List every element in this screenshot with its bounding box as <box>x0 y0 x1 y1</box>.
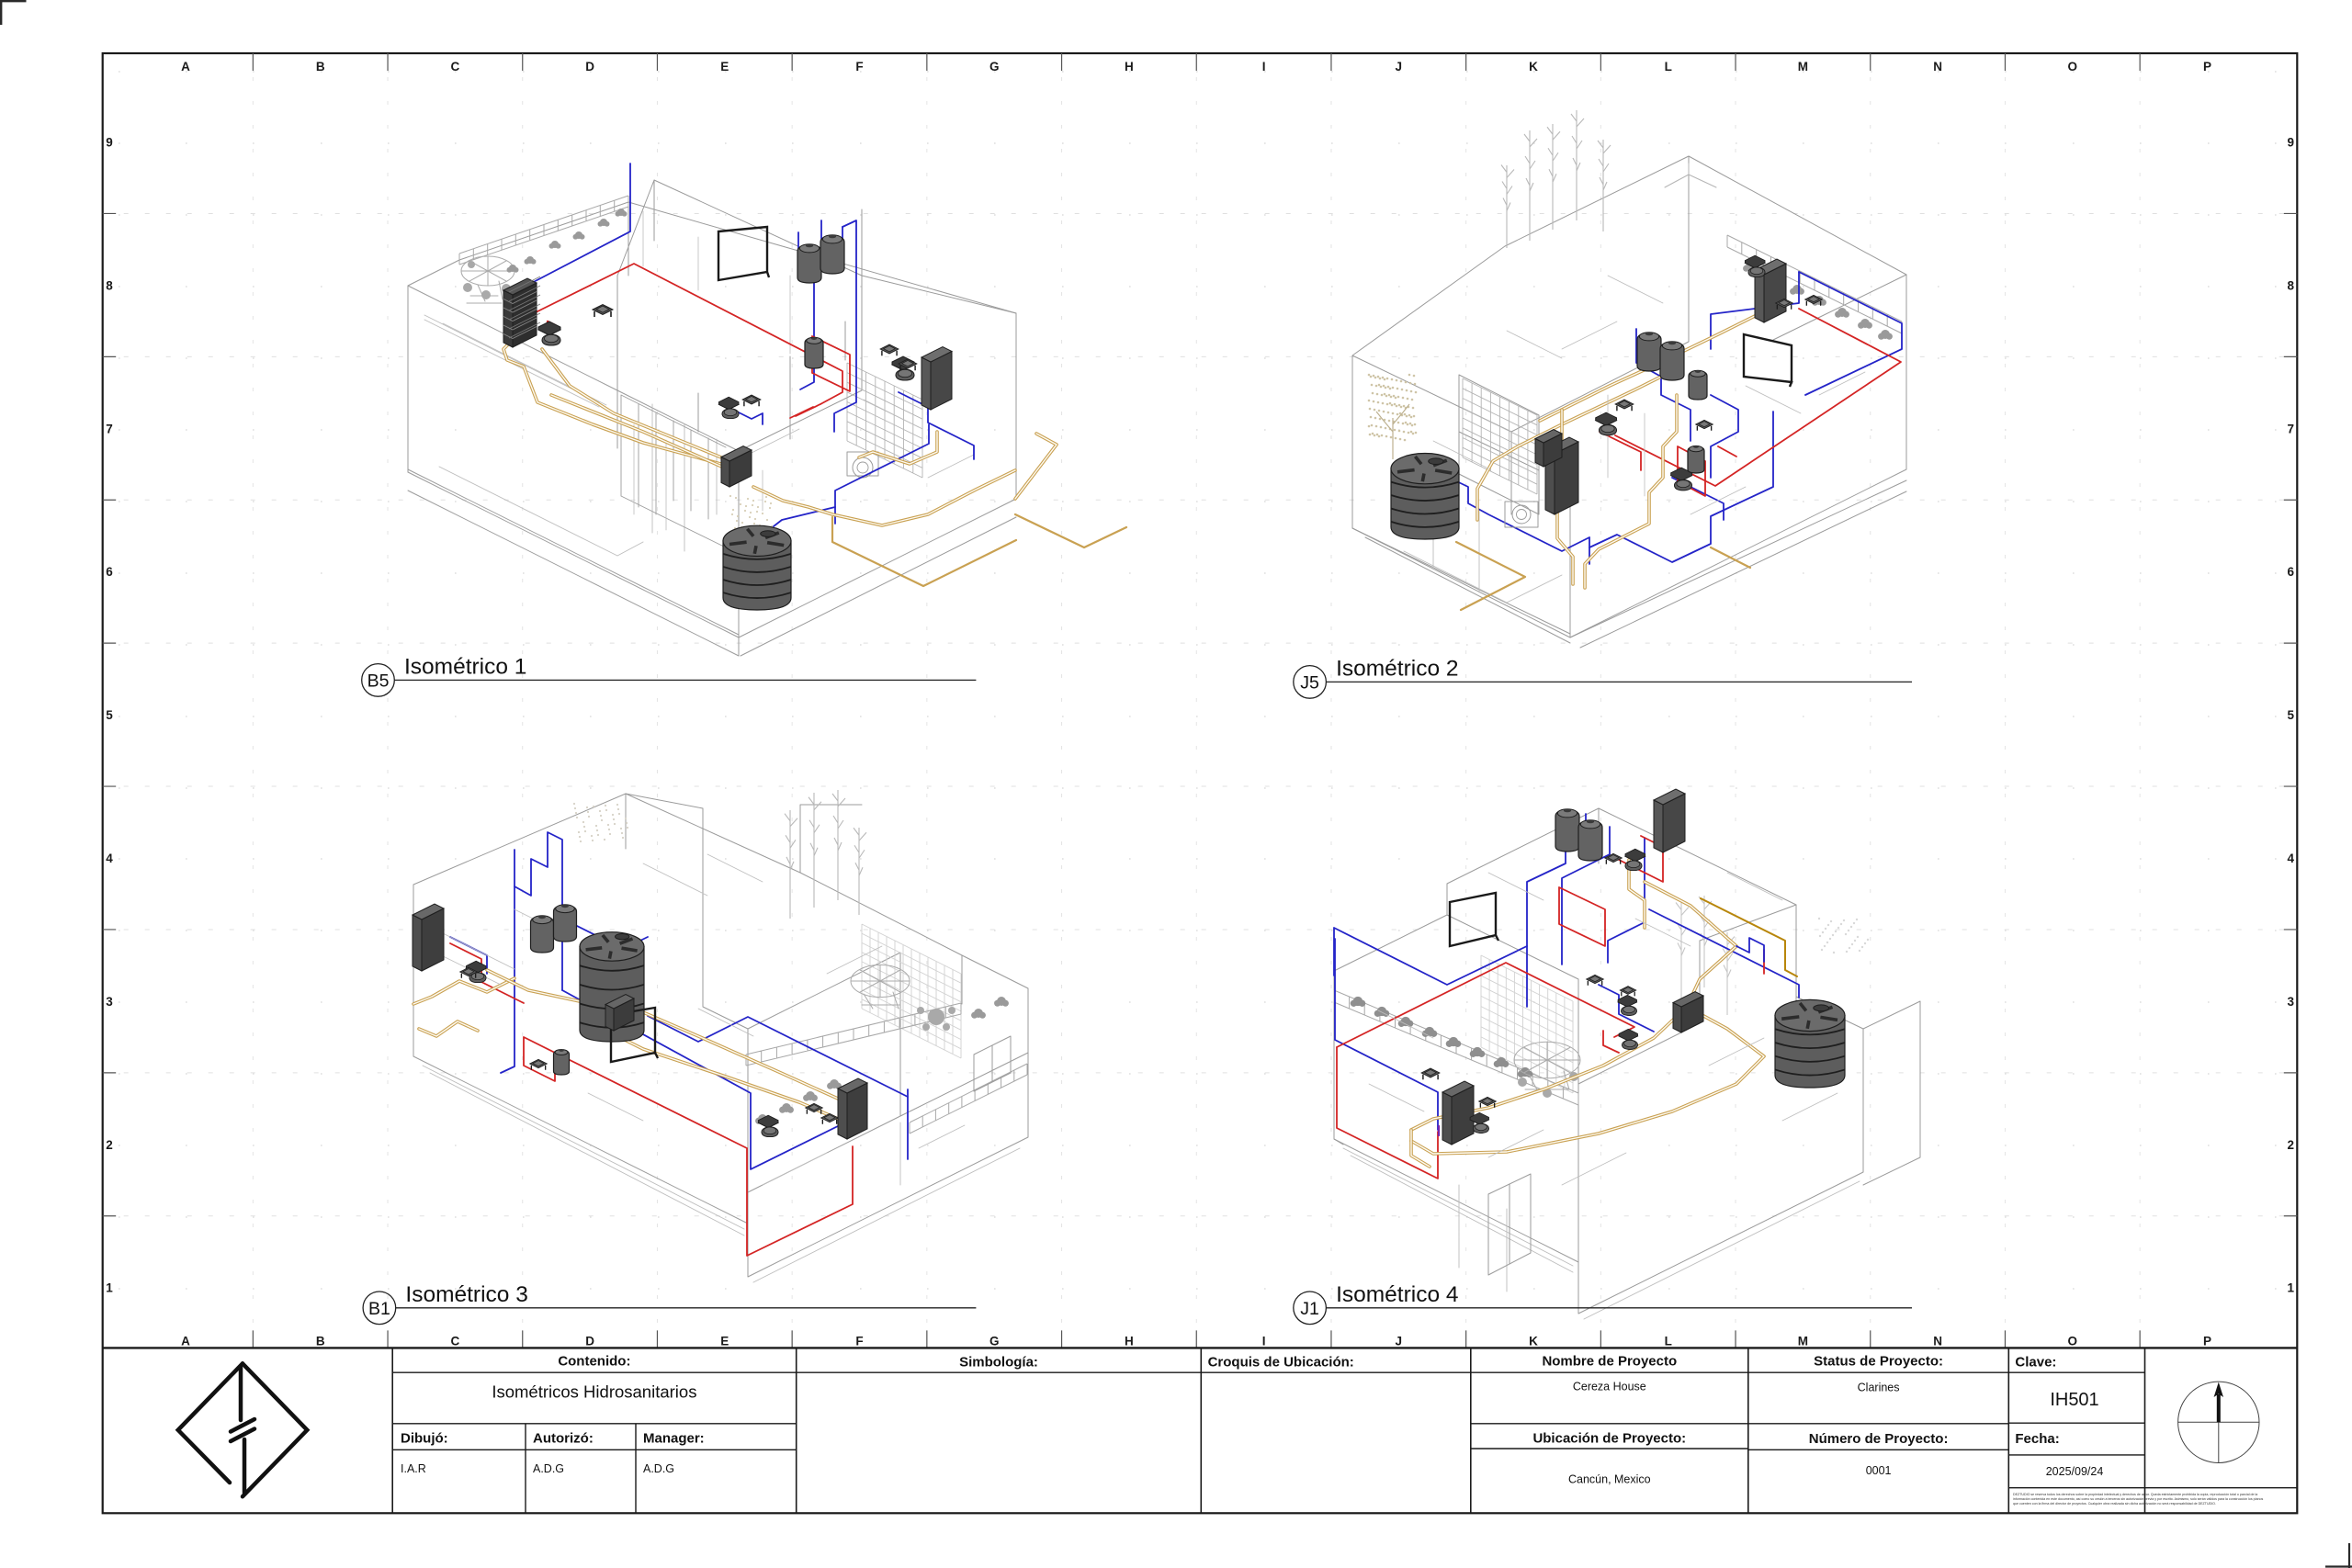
svg-text:J1: J1 <box>1300 1299 1319 1319</box>
svg-text:Clave:: Clave: <box>2015 1355 2056 1371</box>
svg-text:que cuenten con la firma del d: que cuenten con la firma del director de… <box>2013 1502 2216 1506</box>
svg-text:Isométrico 3: Isométrico 3 <box>405 1282 527 1307</box>
svg-text:Croquis de Ubicación:: Croquis de Ubicación: <box>1208 1355 1354 1371</box>
svg-text:4: 4 <box>106 852 113 865</box>
svg-text:1: 1 <box>106 1281 113 1295</box>
svg-text:Contenido:: Contenido: <box>558 1354 630 1370</box>
svg-text:Manager:: Manager: <box>643 1431 705 1447</box>
svg-text:5: 5 <box>2288 708 2295 722</box>
svg-text:Cancún, Mexico: Cancún, Mexico <box>1568 1473 1651 1486</box>
svg-text:D: D <box>585 60 594 73</box>
svg-text:M: M <box>1798 60 1808 73</box>
svg-text:B: B <box>316 60 325 73</box>
svg-text:Ubicación de Proyecto:: Ubicación de Proyecto: <box>1532 1431 1686 1447</box>
svg-text:B5: B5 <box>367 671 390 691</box>
svg-text:E: E <box>720 1335 729 1348</box>
svg-text:J5: J5 <box>1300 672 1319 693</box>
svg-text:Cereza House: Cereza House <box>1573 1381 1646 1393</box>
svg-text:3: 3 <box>2288 995 2295 1009</box>
svg-text:B: B <box>316 1335 325 1348</box>
svg-text:3: 3 <box>106 995 113 1009</box>
svg-text:Nombre de Proyecto: Nombre de Proyecto <box>1542 1354 1677 1370</box>
svg-text:F: F <box>855 60 863 73</box>
svg-text:N: N <box>1933 60 1942 73</box>
svg-text:Isométrico 2: Isométrico 2 <box>1336 656 1458 681</box>
svg-text:8: 8 <box>2288 278 2295 292</box>
svg-text:Fecha:: Fecha: <box>2015 1431 2059 1447</box>
svg-text:I: I <box>1262 1335 1266 1348</box>
svg-text:N: N <box>1933 1335 1942 1348</box>
svg-text:H: H <box>1125 1335 1134 1348</box>
svg-text:K: K <box>1529 1335 1538 1348</box>
svg-text:Número de Proyecto:: Número de Proyecto: <box>1809 1431 1949 1447</box>
svg-text:5: 5 <box>106 708 113 722</box>
svg-text:Simbología:: Simbología: <box>959 1355 1038 1371</box>
svg-text:A: A <box>181 60 190 73</box>
svg-text:9: 9 <box>106 136 113 150</box>
svg-text:A.D.G: A.D.G <box>643 1462 674 1475</box>
svg-text:G: G <box>989 1335 1000 1348</box>
svg-text:Dibujó:: Dibujó: <box>401 1431 448 1447</box>
svg-text:4: 4 <box>2288 852 2295 865</box>
svg-text:J: J <box>1396 1335 1403 1348</box>
svg-text:Isométrico 4: Isométrico 4 <box>1336 1282 1458 1307</box>
svg-text:L: L <box>1665 60 1672 73</box>
svg-text:Status de Proyecto:: Status de Proyecto: <box>1814 1354 1943 1370</box>
svg-text:2: 2 <box>106 1138 113 1152</box>
svg-text:0001: 0001 <box>1866 1464 1892 1477</box>
svg-text:DEZTUDIO se reserva todos los: DEZTUDIO se reserva todos los derechos s… <box>2013 1493 2257 1496</box>
svg-text:P: P <box>2203 1335 2211 1348</box>
svg-text:2025/09/24: 2025/09/24 <box>2046 1465 2104 1478</box>
svg-text:Isométrico 1: Isométrico 1 <box>404 654 526 679</box>
svg-text:I: I <box>1262 60 1266 73</box>
svg-text:6: 6 <box>106 565 113 579</box>
svg-text:I.A.R: I.A.R <box>401 1462 426 1475</box>
svg-text:K: K <box>1529 60 1538 73</box>
svg-text:J: J <box>1396 60 1403 73</box>
svg-text:Isométricos Hidrosanitarios: Isométricos Hidrosanitarios <box>492 1382 696 1402</box>
svg-text:A: A <box>181 1335 190 1348</box>
svg-text:C: C <box>451 1335 460 1348</box>
svg-text:M: M <box>1798 1335 1808 1348</box>
svg-text:C: C <box>451 60 460 73</box>
svg-text:P: P <box>2203 60 2211 73</box>
svg-text:8: 8 <box>106 278 113 292</box>
svg-text:G: G <box>989 60 1000 73</box>
svg-text:E: E <box>720 60 729 73</box>
svg-text:información contenida en este: información contenida en este documento,… <box>2013 1497 2263 1501</box>
svg-text:2: 2 <box>2288 1138 2295 1152</box>
svg-text:H: H <box>1125 60 1134 73</box>
svg-text:Autorizó:: Autorizó: <box>533 1431 594 1447</box>
svg-text:O: O <box>2068 1335 2078 1348</box>
svg-text:1: 1 <box>2288 1281 2295 1295</box>
svg-text:7: 7 <box>106 422 113 435</box>
svg-text:D: D <box>585 1335 594 1348</box>
svg-text:B1: B1 <box>368 1299 390 1319</box>
svg-text:Clarines: Clarines <box>1858 1382 1900 1394</box>
svg-text:O: O <box>2068 60 2078 73</box>
svg-text:L: L <box>1665 1335 1672 1348</box>
svg-text:7: 7 <box>2288 422 2295 435</box>
svg-text:F: F <box>855 1335 863 1348</box>
svg-text:9: 9 <box>2288 136 2295 150</box>
svg-text:IH501: IH501 <box>2050 1390 2098 1410</box>
svg-text:A.D.G: A.D.G <box>533 1462 564 1475</box>
svg-text:6: 6 <box>2288 565 2295 579</box>
